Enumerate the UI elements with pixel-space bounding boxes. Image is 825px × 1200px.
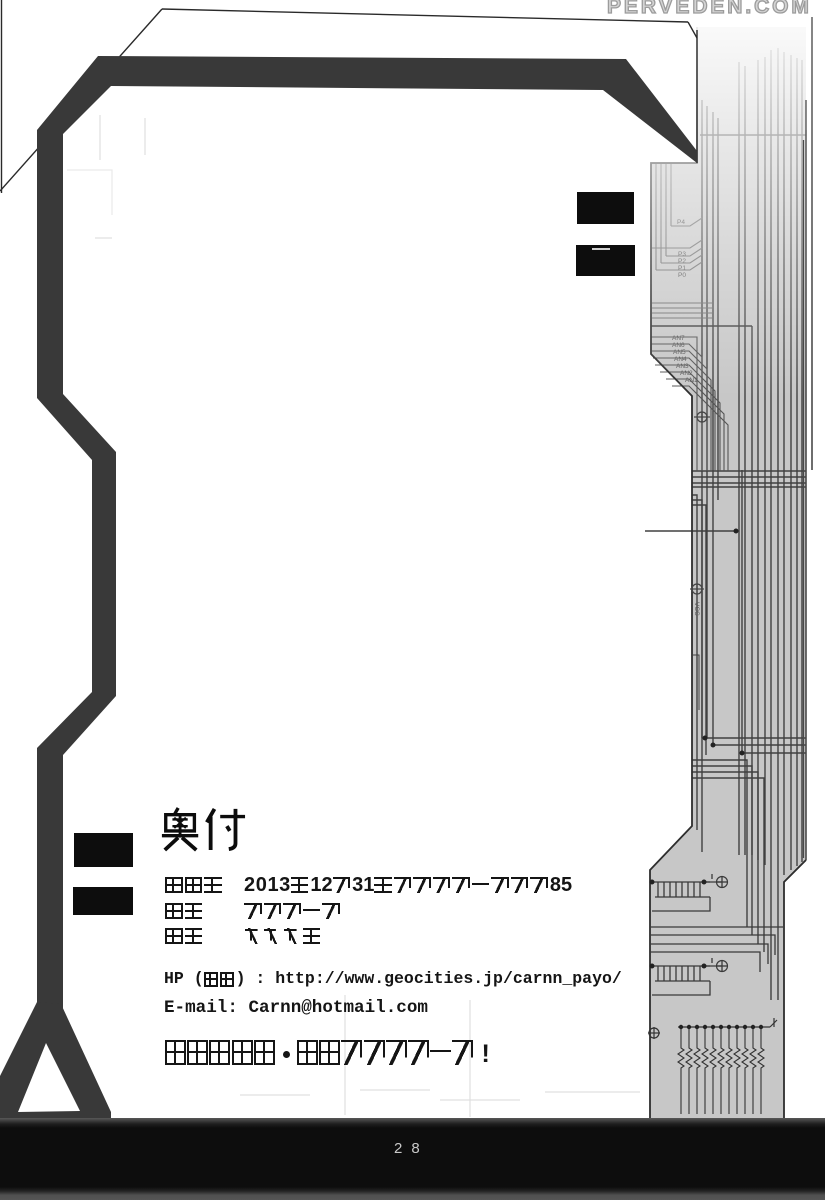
svg-text:VCC: VCC [693, 602, 700, 616]
